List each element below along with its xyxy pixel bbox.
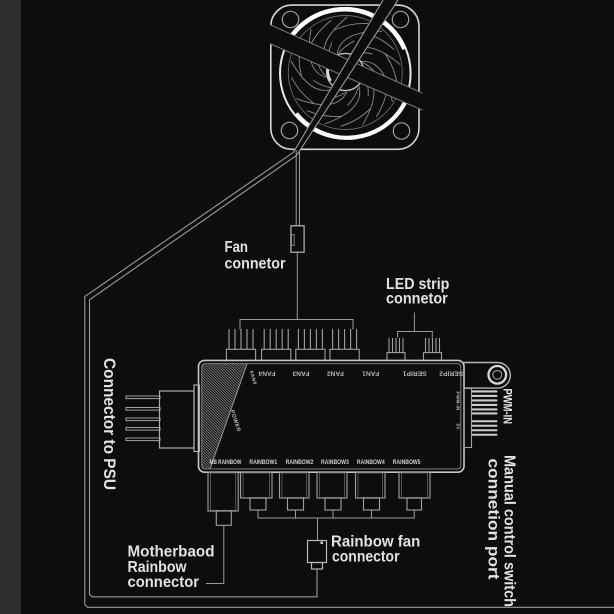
svg-text:MB RAINBOW: MB RAINBOW: [210, 459, 242, 466]
svg-text:connector: connector: [128, 574, 200, 591]
svg-text:RAINBOW5: RAINBOW5: [393, 459, 421, 466]
svg-text:FAN2: FAN2: [326, 370, 344, 376]
svg-text:SERIP1: SERIP1: [402, 370, 427, 376]
svg-text:connetion port: connetion port: [485, 459, 502, 581]
svg-text:connector: connector: [332, 549, 400, 566]
svg-text:Connector to PSU: Connector to PSU: [100, 358, 118, 490]
svg-text:RAINBOW2: RAINBOW2: [286, 459, 314, 466]
svg-text:FAN3: FAN3: [292, 370, 310, 376]
svg-text:RAINBOW3: RAINBOW3: [321, 459, 349, 466]
svg-text:connetor: connetor: [225, 255, 286, 272]
svg-text:RAINBOW4: RAINBOW4: [357, 459, 385, 466]
svg-text:SERIP2: SERIP2: [439, 370, 464, 376]
svg-text:connetor: connetor: [386, 291, 448, 308]
svg-text:Fan: Fan: [225, 239, 249, 256]
svg-text:RAINBOW1: RAINBOW1: [249, 459, 277, 466]
svg-text:5V: 5V: [456, 424, 461, 431]
svg-text:PWM-IN: PWM-IN: [456, 392, 461, 412]
svg-text:FAN1: FAN1: [361, 370, 379, 376]
svg-text:FAN4: FAN4: [258, 370, 276, 376]
svg-text:PWM-IN: PWM-IN: [501, 389, 515, 425]
svg-text:Manual control switch: Manual control switch: [501, 455, 518, 607]
